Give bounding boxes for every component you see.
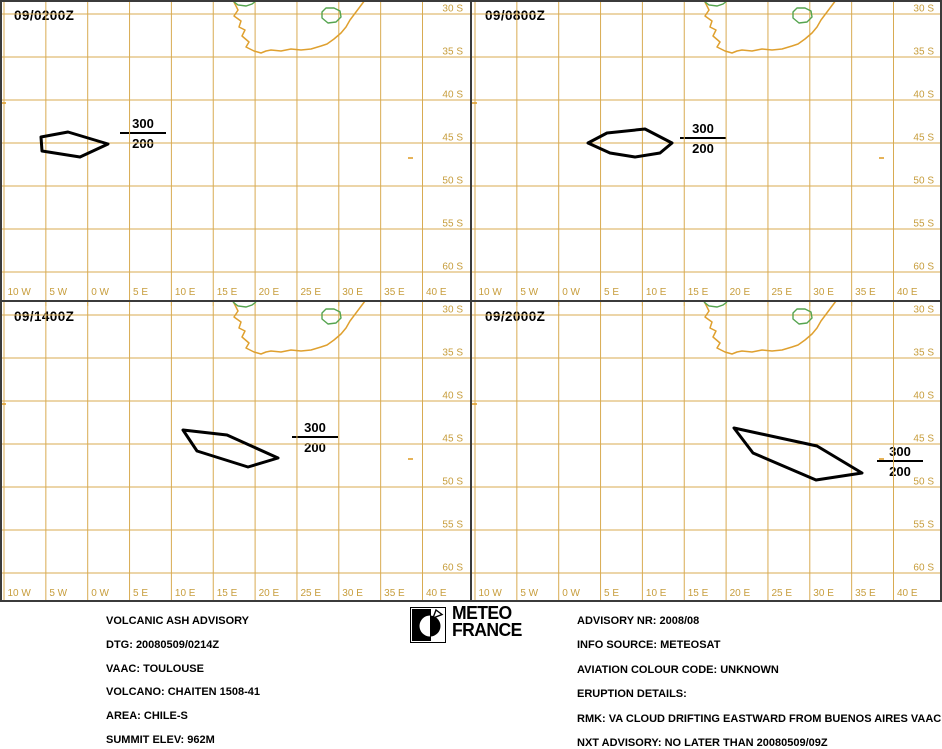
ash-cloud-polygon [41,132,108,157]
logo-line-2: FRANCE [452,622,522,639]
lat-label: 60 S [442,563,463,574]
lon-label: 10 W [8,588,32,599]
lon-label: 10 E [175,287,196,298]
divider-horizontal [0,300,942,302]
coastline [704,301,836,354]
lon-label: 10 E [175,588,196,599]
basemap: 10 W5 W0 W5 E10 E15 E20 E25 E30 E35 E40 … [0,0,471,307]
map-panel-0800z: 09/0800Z 300 200 10 W5 W0 W5 E10 E15 E20… [471,0,942,301]
lon-label: 0 W [91,287,109,298]
lon-label: 5 W [520,287,538,298]
lat-label: 45 S [913,434,934,445]
lat-label: 45 S [913,133,934,144]
lon-label: 35 E [384,588,405,599]
lon-label: 40 E [426,588,447,599]
lon-label: 40 E [897,588,918,599]
lon-label: 15 E [688,287,709,298]
footer-right-line: ADVISORY NR: 2008/08 [577,615,941,639]
lat-label: 35 S [442,47,463,58]
lat-label: 40 S [442,90,463,101]
lon-label: 15 E [688,588,709,599]
footer-left-line: AREA: CHILE-S [106,710,260,734]
footer-right-line: RMK: VA CLOUD DRIFTING EASTWARD FROM BUE… [577,713,941,737]
lat-label: 35 S [442,348,463,359]
ash-cloud-polygon [183,430,278,467]
lon-label: 15 E [217,588,238,599]
meteo-france-logo-text: METEO FRANCE [452,605,522,638]
lat-label: 30 S [913,305,934,316]
vaa-graphic: 09/0200Z 300 200 10 W5 W0 W5 E10 E15 E20… [0,0,942,749]
lon-label: 0 W [562,287,580,298]
lon-label: 30 E [342,287,363,298]
lat-label: 35 S [913,348,934,359]
lon-label: 25 E [771,287,792,298]
lon-label: 10 W [479,287,503,298]
lon-label: 5 W [49,287,67,298]
lon-label: 25 E [300,588,321,599]
basemap: 10 W5 W0 W5 E10 E15 E20 E25 E30 E35 E40 … [471,0,942,307]
lat-label: 50 S [913,477,934,488]
meteo-france-logo: METEO FRANCE [410,607,550,647]
lon-label: 25 E [771,588,792,599]
lon-label: 20 E [259,287,280,298]
lat-label: 45 S [442,434,463,445]
coastline [233,301,365,354]
basemap: 10 W5 W0 W5 E10 E15 E20 E25 E30 E35 E40 … [0,301,471,608]
lat-label: 55 S [913,520,934,531]
lon-label: 30 E [813,287,834,298]
lon-label: 5 W [49,588,67,599]
country-border [322,309,341,324]
lon-label: 10 W [8,287,32,298]
lon-label: 20 E [259,588,280,599]
footer-right-line: NXT ADVISORY: NO LATER THAN 20080509/09Z [577,737,941,749]
advisory-details-right: ADVISORY NR: 2008/08INFO SOURCE: METEOSA… [577,615,941,749]
lat-label: 30 S [913,4,934,15]
footer-left-line: SUMMIT ELEV: 962M [106,734,260,749]
country-border [322,8,341,23]
footer-left-line: DTG: 20080509/0214Z [106,639,260,663]
lat-label: 40 S [442,391,463,402]
footer-left-line: VOLCANO: CHAITEN 1508-41 [106,686,260,710]
lon-label: 5 E [604,287,619,298]
lon-label: 0 W [562,588,580,599]
lat-label: 60 S [442,262,463,273]
footer-left-line: VOLCANIC ASH ADVISORY [106,615,260,639]
lon-label: 5 E [604,588,619,599]
ash-cloud-polygon [734,428,862,480]
lon-label: 35 E [384,287,405,298]
footer-right-line: ERUPTION DETAILS: [577,688,941,712]
coastline [704,0,836,53]
footer-right-line: INFO SOURCE: METEOSAT [577,639,941,663]
lat-label: 50 S [442,477,463,488]
lon-label: 10 W [479,588,503,599]
map-panel-2000z: 09/2000Z 300 200 10 W5 W0 W5 E10 E15 E20… [471,301,942,602]
lat-label: 55 S [442,520,463,531]
lon-label: 35 E [855,588,876,599]
lon-label: 5 E [133,287,148,298]
country-border [793,8,812,23]
lat-label: 30 S [442,305,463,316]
coastline [233,0,365,53]
lon-label: 30 E [342,588,363,599]
map-panel-0200z: 09/0200Z 300 200 10 W5 W0 W5 E10 E15 E20… [0,0,471,301]
lat-label: 60 S [913,563,934,574]
lat-label: 55 S [913,219,934,230]
country-border [793,309,812,324]
lon-label: 40 E [897,287,918,298]
map-panel-1400z: 09/1400Z 300 200 10 W5 W0 W5 E10 E15 E20… [0,301,471,602]
lon-label: 20 E [730,588,751,599]
lon-label: 30 E [813,588,834,599]
lon-label: 40 E [426,287,447,298]
lon-label: 0 W [91,588,109,599]
lat-label: 60 S [913,262,934,273]
lat-label: 55 S [442,219,463,230]
lat-label: 40 S [913,391,934,402]
lon-label: 20 E [730,287,751,298]
lat-label: 50 S [442,176,463,187]
lat-label: 30 S [442,4,463,15]
lon-label: 5 E [133,588,148,599]
lat-label: 35 S [913,47,934,58]
advisory-footer: VOLCANIC ASH ADVISORYDTG: 20080509/0214Z… [0,602,942,749]
lon-label: 25 E [300,287,321,298]
footer-right-line: AVIATION COLOUR CODE: UNKNOWN [577,664,941,688]
lat-label: 50 S [913,176,934,187]
lon-label: 10 E [646,588,667,599]
lon-label: 15 E [217,287,238,298]
lon-label: 10 E [646,287,667,298]
basemap: 10 W5 W0 W5 E10 E15 E20 E25 E30 E35 E40 … [471,301,942,608]
lat-label: 40 S [913,90,934,101]
footer-left-line: VAAC: TOULOUSE [106,663,260,687]
lat-label: 45 S [442,133,463,144]
advisory-details-left: VOLCANIC ASH ADVISORYDTG: 20080509/0214Z… [106,615,260,749]
lon-label: 35 E [855,287,876,298]
lon-label: 5 W [520,588,538,599]
meteo-france-logo-icon [410,607,446,643]
